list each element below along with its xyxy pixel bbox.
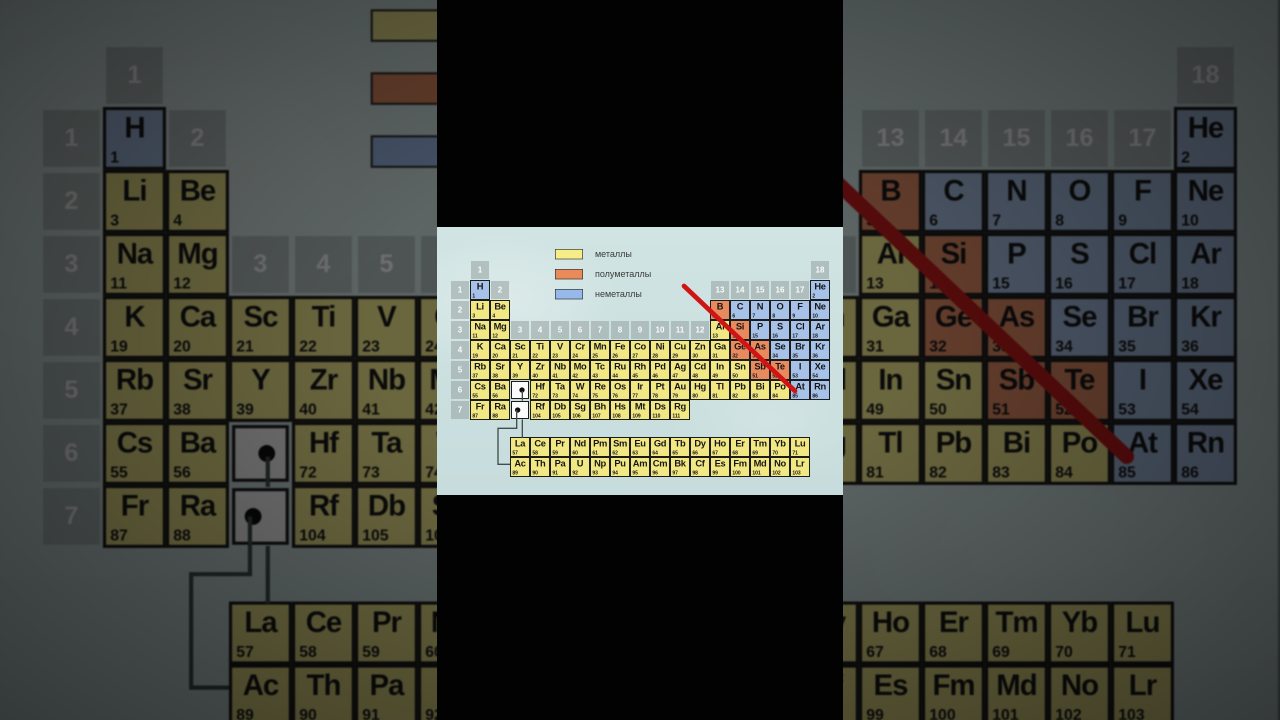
group-header-7: 7: [591, 321, 609, 339]
element-Ar: Ar18: [810, 320, 830, 340]
element-Ta: Ta73: [550, 380, 570, 400]
element-Cr: Cr24: [570, 340, 590, 360]
element-number: 105: [552, 413, 560, 419]
element-symbol: Pu: [611, 458, 629, 469]
element-symbol: Ho: [711, 438, 729, 449]
element-symbol: Bi: [751, 381, 769, 392]
element-Ge: Ge32: [730, 340, 750, 360]
element-symbol: Ar: [811, 321, 829, 332]
element-number: 40: [532, 373, 538, 379]
element-symbol: Kr: [811, 341, 829, 352]
element-symbol: W: [571, 381, 589, 392]
element-number: 76: [612, 393, 618, 399]
group-header-11: 11: [671, 321, 689, 339]
element-symbol: Ba: [491, 381, 509, 392]
element-number: 6: [732, 313, 735, 319]
element-symbol: Ta: [551, 381, 569, 392]
element-symbol: La: [511, 438, 529, 449]
element-symbol: Pt: [651, 381, 669, 392]
element-number: 3: [472, 313, 475, 319]
element-number: 17: [792, 333, 798, 339]
element-number: 87: [472, 413, 478, 419]
element-symbol: Mt: [631, 401, 649, 412]
element-number: 49: [712, 373, 718, 379]
element-number: 78: [652, 393, 658, 399]
element-Ir: Ir77: [630, 380, 650, 400]
element-symbol: Na: [471, 321, 489, 332]
group-header-6: 6: [571, 321, 589, 339]
placeholder-dot: [519, 387, 524, 392]
element-symbol: Cr: [571, 341, 589, 352]
period-label-4: 4: [451, 341, 469, 359]
legend-item: неметаллы: [555, 289, 695, 300]
group-header-3: 3: [511, 321, 529, 339]
element-number: 12: [492, 333, 498, 339]
element-symbol: In: [711, 361, 729, 372]
placeholder-dot: [515, 407, 520, 412]
element-number: 75: [592, 393, 598, 399]
element-symbol: Cd: [691, 361, 709, 372]
element-number: 41: [552, 373, 558, 379]
periodic-table: металлыполуметаллынеметаллы1234567118213…: [437, 227, 843, 495]
element-symbol: Sb: [751, 361, 769, 372]
element-Ra: Ra88: [490, 400, 510, 420]
element-symbol: Ra: [491, 401, 509, 412]
element-C: C6: [730, 300, 750, 320]
element-number: 65: [672, 450, 678, 456]
element-Mg: Mg12: [490, 320, 510, 340]
element-symbol: Cf: [691, 458, 709, 469]
element-Er: Er68: [730, 437, 750, 457]
element-number: 81: [712, 393, 718, 399]
element-number: 68: [732, 450, 738, 456]
element-symbol: Au: [671, 381, 689, 392]
element-Ga: Ga31: [710, 340, 730, 360]
element-number: 21: [512, 353, 518, 359]
element-W: W74: [570, 380, 590, 400]
element-Y: Y39: [510, 360, 530, 380]
element-H: H1: [470, 280, 490, 300]
element-symbol: V: [551, 341, 569, 352]
element-number: 24: [572, 353, 578, 359]
element-symbol: N: [751, 301, 769, 312]
element-number: 46: [652, 373, 658, 379]
group-header-8: 8: [611, 321, 629, 339]
element-number: 32: [732, 353, 738, 359]
period-label-6: 6: [451, 381, 469, 399]
element-symbol: Lu: [791, 438, 809, 449]
element-Au: Au79: [670, 380, 690, 400]
element-symbol: As: [751, 341, 769, 352]
element-number: 63: [632, 450, 638, 456]
element-Co: Co27: [630, 340, 650, 360]
ac-placeholder-cell: [511, 401, 529, 419]
element-Li: Li3: [470, 300, 490, 320]
element-Al: Al13: [710, 320, 730, 340]
element-number: 64: [652, 450, 658, 456]
element-B: B5: [710, 300, 730, 320]
element-number: 95: [632, 470, 638, 476]
element-number: 18: [812, 333, 818, 339]
element-symbol: Cl: [791, 321, 809, 332]
element-At: At85: [790, 380, 810, 400]
element-symbol: No: [771, 458, 789, 469]
element-symbol: Am: [631, 458, 649, 469]
element-symbol: At: [791, 381, 809, 392]
element-symbol: Y: [511, 361, 529, 372]
element-symbol: Pm: [591, 438, 609, 449]
element-symbol: Li: [471, 301, 489, 312]
element-In: In49: [710, 360, 730, 380]
element-number: 33: [752, 353, 758, 359]
element-number: 48: [692, 373, 698, 379]
element-Sc: Sc21: [510, 340, 530, 360]
element-Cd: Cd48: [690, 360, 710, 380]
element-Cu: Cu29: [670, 340, 690, 360]
element-number: 60: [572, 450, 578, 456]
element-symbol: U: [571, 458, 589, 469]
element-U: U92: [570, 457, 590, 477]
element-symbol: Ac: [511, 458, 529, 469]
element-symbol: Pa: [551, 458, 569, 469]
element-number: 57: [512, 450, 518, 456]
element-Hf: Hf72: [530, 380, 550, 400]
element-number: 86: [812, 393, 818, 399]
element-symbol: Md: [751, 458, 769, 469]
element-number: 54: [812, 373, 818, 379]
element-symbol: Sm: [611, 438, 629, 449]
legend-item: полуметаллы: [555, 269, 695, 280]
element-Bi: Bi83: [750, 380, 770, 400]
element-symbol: Pb: [731, 381, 749, 392]
element-Sm: Sm62: [610, 437, 630, 457]
element-Ds: Ds110: [650, 400, 670, 420]
legend-item: металлы: [555, 249, 695, 260]
element-number: 77: [632, 393, 638, 399]
element-Sg: Sg106: [570, 400, 590, 420]
element-Rg: Rg111: [670, 400, 690, 420]
element-number: 99: [712, 470, 718, 476]
element-symbol: S: [771, 321, 789, 332]
element-As: As33: [750, 340, 770, 360]
element-symbol: Rf: [531, 401, 549, 412]
element-symbol: Th: [531, 458, 549, 469]
element-symbol: Gd: [651, 438, 669, 449]
element-Pd: Pd46: [650, 360, 670, 380]
element-symbol: Cm: [651, 458, 669, 469]
element-number: 27: [632, 353, 638, 359]
group-header-10: 10: [651, 321, 669, 339]
element-Hg: Hg80: [690, 380, 710, 400]
element-V: V23: [550, 340, 570, 360]
element-number: 9: [792, 313, 795, 319]
legend-swatch: [555, 249, 583, 259]
element-Pr: Pr59: [550, 437, 570, 457]
group-header-17: 17: [791, 281, 809, 299]
element-number: 84: [772, 393, 778, 399]
element-symbol: Ti: [531, 341, 549, 352]
element-Yb: Yb70: [770, 437, 790, 457]
element-Np: Np93: [590, 457, 610, 477]
element-Es: Es99: [710, 457, 730, 477]
element-symbol: Mn: [591, 341, 609, 352]
element-Fm: Fm100: [730, 457, 750, 477]
element-number: 101: [752, 470, 760, 476]
element-Zn: Zn30: [690, 340, 710, 360]
element-number: 45: [632, 373, 638, 379]
group-header-14: 14: [731, 281, 749, 299]
element-number: 103: [792, 470, 800, 476]
element-Tl: Tl81: [710, 380, 730, 400]
element-number: 19: [472, 353, 478, 359]
element-Pa: Pa91: [550, 457, 570, 477]
element-number: 42: [572, 373, 578, 379]
element-number: 39: [512, 373, 518, 379]
element-number: 23: [552, 353, 558, 359]
element-number: 109: [632, 413, 640, 419]
element-Gd: Gd64: [650, 437, 670, 457]
element-symbol: B: [711, 301, 729, 312]
element-symbol: Re: [591, 381, 609, 392]
element-number: 70: [772, 450, 778, 456]
element-symbol: F: [791, 301, 809, 312]
element-Pm: Pm61: [590, 437, 610, 457]
element-symbol: He: [811, 281, 829, 292]
element-symbol: Pd: [651, 361, 669, 372]
element-symbol: Ir: [631, 381, 649, 392]
element-number: 47: [672, 373, 678, 379]
element-Mn: Mn25: [590, 340, 610, 360]
element-number: 107: [592, 413, 600, 419]
element-Cf: Cf98: [690, 457, 710, 477]
element-number: 62: [612, 450, 618, 456]
element-Ca: Ca20: [490, 340, 510, 360]
group-header-15: 15: [751, 281, 769, 299]
element-symbol: Cs: [471, 381, 489, 392]
element-number: 31: [712, 353, 718, 359]
element-Se: Se34: [770, 340, 790, 360]
element-Pu: Pu94: [610, 457, 630, 477]
element-symbol: Nb: [551, 361, 569, 372]
element-symbol: Br: [791, 341, 809, 352]
element-number: 74: [572, 393, 578, 399]
element-symbol: Ru: [611, 361, 629, 372]
element-symbol: Hf: [531, 381, 549, 392]
element-Cs: Cs55: [470, 380, 490, 400]
element-I: I53: [790, 360, 810, 380]
element-number: 72: [532, 393, 538, 399]
element-number: 90: [532, 470, 538, 476]
element-number: 25: [592, 353, 598, 359]
element-number: 71: [792, 450, 798, 456]
element-symbol: Rg: [671, 401, 689, 412]
element-number: 94: [612, 470, 618, 476]
element-Ru: Ru44: [610, 360, 630, 380]
video-frame[interactable]: металлыполуметаллынеметаллы1234567118213…: [0, 0, 1280, 720]
element-K: K19: [470, 340, 490, 360]
element-Mt: Mt109: [630, 400, 650, 420]
element-number: 108: [612, 413, 620, 419]
element-symbol: Yb: [771, 438, 789, 449]
element-Pt: Pt78: [650, 380, 670, 400]
element-number: 20: [492, 353, 498, 359]
element-Pb: Pb82: [730, 380, 750, 400]
element-Ti: Ti22: [530, 340, 550, 360]
element-symbol: Fr: [471, 401, 489, 412]
element-Sb: Sb51: [750, 360, 770, 380]
element-symbol: Hs: [611, 401, 629, 412]
element-Nd: Nd60: [570, 437, 590, 457]
element-number: 44: [612, 373, 618, 379]
element-Rf: Rf104: [530, 400, 550, 420]
element-Ba: Ba56: [490, 380, 510, 400]
element-Rn: Rn86: [810, 380, 830, 400]
element-number: 34: [772, 353, 778, 359]
element-P: P15: [750, 320, 770, 340]
element-Lr: Lr103: [790, 457, 810, 477]
element-Ne: Ne10: [810, 300, 830, 320]
element-number: 61: [592, 450, 598, 456]
group-header-4: 4: [531, 321, 549, 339]
legend-label: полуметаллы: [595, 269, 651, 279]
element-Te: Te52: [770, 360, 790, 380]
legend-swatch: [555, 269, 583, 279]
element-symbol: Rb: [471, 361, 489, 372]
element-Bk: Bk97: [670, 457, 690, 477]
element-symbol: Ca: [491, 341, 509, 352]
element-number: 88: [492, 413, 498, 419]
element-number: 15: [752, 333, 758, 339]
element-Os: Os76: [610, 380, 630, 400]
element-number: 79: [672, 393, 678, 399]
element-number: 91: [552, 470, 558, 476]
element-Kr: Kr36: [810, 340, 830, 360]
element-symbol: Co: [631, 341, 649, 352]
element-Fe: Fe26: [610, 340, 630, 360]
element-number: 73: [552, 393, 558, 399]
element-number: 59: [552, 450, 558, 456]
element-symbol: Po: [771, 381, 789, 392]
element-number: 16: [772, 333, 778, 339]
element-symbol: Ag: [671, 361, 689, 372]
element-Si: Si14: [730, 320, 750, 340]
element-number: 1: [472, 293, 475, 299]
element-symbol: Zr: [531, 361, 549, 372]
element-symbol: Ni: [651, 341, 669, 352]
element-Hs: Hs108: [610, 400, 630, 420]
element-number: 58: [532, 450, 538, 456]
element-Nb: Nb41: [550, 360, 570, 380]
element-number: 111: [672, 413, 680, 419]
element-symbol: Ge: [731, 341, 749, 352]
element-symbol: Dy: [691, 438, 709, 449]
element-symbol: Sg: [571, 401, 589, 412]
element-number: 98: [692, 470, 698, 476]
element-number: 7: [752, 313, 755, 319]
element-number: 52: [772, 373, 778, 379]
element-number: 2: [812, 293, 815, 299]
element-number: 38: [492, 373, 498, 379]
element-symbol: Lr: [791, 458, 809, 469]
video-content-strip: металлыполуметаллынеметаллы1234567118213…: [437, 0, 843, 720]
element-Mo: Mo42: [570, 360, 590, 380]
element-number: 13: [712, 333, 718, 339]
element-symbol: Sr: [491, 361, 509, 372]
element-number: 30: [692, 353, 698, 359]
group-header-2: 2: [491, 281, 509, 299]
element-number: 37: [472, 373, 478, 379]
element-number: 82: [732, 393, 738, 399]
element-Ac: Ac89: [510, 457, 530, 477]
element-number: 5: [712, 313, 715, 319]
element-Db: Db105: [550, 400, 570, 420]
element-symbol: Sn: [731, 361, 749, 372]
element-Md: Md101: [750, 457, 770, 477]
element-symbol: Er: [731, 438, 749, 449]
element-number: 83: [752, 393, 758, 399]
element-Lu: Lu71: [790, 437, 810, 457]
element-Be: Be4: [490, 300, 510, 320]
element-symbol: Os: [611, 381, 629, 392]
element-Tm: Tm69: [750, 437, 770, 457]
element-symbol: Xe: [811, 361, 829, 372]
element-number: 96: [652, 470, 658, 476]
element-Rb: Rb37: [470, 360, 490, 380]
element-symbol: O: [771, 301, 789, 312]
element-Ho: Ho67: [710, 437, 730, 457]
legend-swatch: [555, 289, 583, 299]
element-He: He2: [810, 280, 830, 300]
element-number: 85: [792, 393, 798, 399]
element-number: 104: [532, 413, 540, 419]
element-symbol: Si: [731, 321, 749, 332]
group-header-1: 1: [471, 261, 489, 279]
element-Na: Na11: [470, 320, 490, 340]
element-La: La57: [510, 437, 530, 457]
element-number: 110: [652, 413, 660, 419]
element-number: 53: [792, 373, 798, 379]
element-symbol: C: [731, 301, 749, 312]
element-Th: Th90: [530, 457, 550, 477]
element-No: No102: [770, 457, 790, 477]
element-Dy: Dy66: [690, 437, 710, 457]
element-Eu: Eu63: [630, 437, 650, 457]
element-Tc: Tc43: [590, 360, 610, 380]
element-number: 35: [792, 353, 798, 359]
element-Bh: Bh107: [590, 400, 610, 420]
element-number: 29: [672, 353, 678, 359]
element-S: S16: [770, 320, 790, 340]
element-number: 93: [592, 470, 598, 476]
element-number: 89: [512, 470, 518, 476]
element-symbol: Rn: [811, 381, 829, 392]
period-label-5: 5: [451, 361, 469, 379]
element-Br: Br35: [790, 340, 810, 360]
period-label-2: 2: [451, 301, 469, 319]
la-placeholder-cell: [511, 381, 529, 399]
element-Xe: Xe54: [810, 360, 830, 380]
element-symbol: Ne: [811, 301, 829, 312]
element-symbol: Db: [551, 401, 569, 412]
element-number: 106: [572, 413, 580, 419]
element-number: 10: [812, 313, 818, 319]
element-symbol: Al: [711, 321, 729, 332]
element-symbol: Ce: [531, 438, 549, 449]
legend-label: металлы: [595, 249, 632, 259]
element-number: 26: [612, 353, 618, 359]
element-number: 80: [692, 393, 698, 399]
element-symbol: Ga: [711, 341, 729, 352]
